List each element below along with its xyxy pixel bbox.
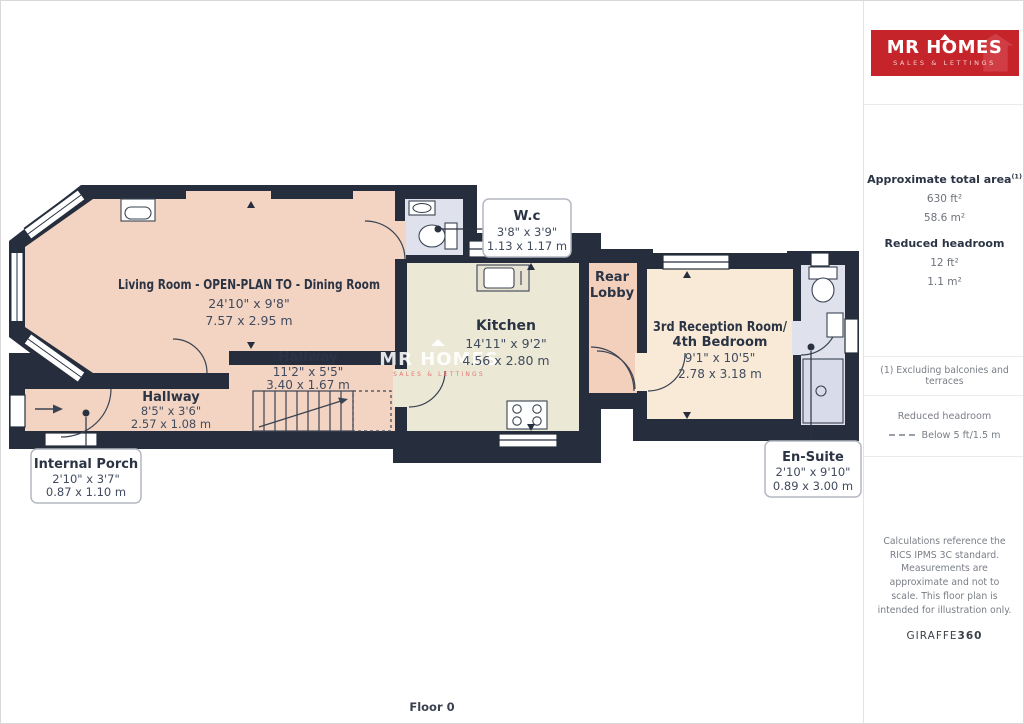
- kitchen-name: Kitchen: [476, 318, 536, 334]
- ensuite-callout-metric: 0.89 x 3.00 m: [773, 479, 853, 493]
- logo-tagline: SALES & LETTINGS: [893, 59, 996, 67]
- provider-suffix: 360: [958, 630, 983, 642]
- porch-entry-opening: [10, 395, 25, 427]
- alcove-notch-2: [353, 191, 395, 201]
- porch-threshold: [45, 433, 97, 446]
- agency-logo: MR HOMES SALES & LETTINGS: [871, 30, 1019, 76]
- fireplace: [121, 199, 155, 221]
- hallway-front-imperial: 8'5" x 3'6": [141, 404, 201, 418]
- watermark-tagline: SALES & LETTINGS: [393, 371, 485, 378]
- door-gap-lobby-reception: [635, 353, 649, 391]
- footnote-text: (1) Excluding balconies and terraces: [876, 365, 1013, 387]
- hallway-front-metric: 2.57 x 1.08 m: [131, 417, 211, 431]
- hallway-main-metric: 3.40 x 1.67 m: [266, 378, 350, 392]
- porch-callout-imperial: 2'10" x 3'7": [52, 472, 120, 486]
- logo-section: MR HOMES SALES & LETTINGS: [864, 1, 1024, 105]
- roof-icon: [940, 34, 950, 40]
- reception-name-2: 4th Bedroom: [673, 335, 768, 350]
- total-area-heading: Approximate total area(1): [867, 173, 1022, 186]
- total-area-imperial: 630 ft²: [927, 193, 962, 205]
- total-area-superscript: (1): [1011, 172, 1021, 180]
- door-gap-reception-ensuite: [792, 321, 803, 355]
- ensuite-top-window: [811, 253, 829, 266]
- alcove-notch-1: [186, 191, 271, 201]
- porch-callout-metric: 0.87 x 1.10 m: [46, 485, 126, 499]
- legend-label: Reduced headroom: [898, 411, 991, 422]
- hallway-main-imperial: 11'2" x 5'5": [273, 365, 344, 379]
- floorplan-svg: MR HOMES SALES & LETTINGS Living Room - …: [1, 1, 863, 724]
- legend-row: Below 5 ft/1.5 m: [889, 430, 1001, 441]
- floor-label: Floor 0: [409, 700, 454, 714]
- hallway-main-name: Hallway: [278, 349, 338, 365]
- rear-lobby-name-1: Rear: [595, 270, 630, 285]
- ensuite-leader-dot: [808, 344, 815, 351]
- reception-name-1: 3rd Reception Room/: [653, 320, 787, 335]
- porch-leader-dot: [83, 410, 90, 417]
- ensuite-sink: [827, 313, 843, 337]
- reduced-headroom-heading: Reduced headroom: [885, 237, 1005, 250]
- legend-section: Reduced headroom Below 5 ft/1.5 m: [864, 396, 1024, 457]
- porch-callout-name: Internal Porch: [34, 457, 138, 472]
- reduced-headroom-metric: 1.1 m²: [927, 276, 961, 288]
- hallway-front-name: Hallway: [142, 390, 200, 405]
- stove: [507, 401, 547, 429]
- wc-callout-metric: 1.13 x 1.17 m: [487, 239, 567, 253]
- kitchen-metric: 4.56 x 2.80 m: [462, 353, 549, 368]
- kitchen-imperial: 14'11" x 9'2": [465, 336, 546, 351]
- legend-value: Below 5 ft/1.5 m: [922, 430, 1001, 441]
- ensuite-callout-name: En-Suite: [782, 450, 844, 465]
- reception-metric: 2.78 x 3.18 m: [678, 367, 762, 381]
- floorplan-drawing: MR HOMES SALES & LETTINGS Living Room - …: [1, 1, 863, 724]
- wc-callout-name: W.c: [514, 208, 541, 224]
- logo-brand-label: MR HOMES: [887, 37, 1003, 58]
- reception-imperial: 9'1" x 10'5": [685, 351, 756, 365]
- dashed-line-icon: [889, 434, 915, 436]
- total-area-label: Approximate total area: [867, 173, 1011, 186]
- ensuite-callout-imperial: 2'10" x 9'10": [776, 465, 851, 479]
- total-area-metric: 58.6 m²: [924, 212, 965, 224]
- wc-callout-imperial: 3'8" x 3'9": [497, 225, 557, 239]
- footnote-section: (1) Excluding balconies and terraces: [864, 357, 1024, 396]
- provider-name: GIRAFFE: [907, 630, 958, 642]
- living-room-name: Living Room - OPEN-PLAN TO - Dining Room: [118, 277, 380, 293]
- wc-sink: [409, 201, 435, 215]
- disclaimer-section: Calculations reference the RICS IPMS 3C …: [864, 457, 1024, 724]
- disclaimer-text: Calculations reference the RICS IPMS 3C …: [876, 535, 1013, 619]
- wc-leader-dot: [435, 226, 442, 233]
- kitchen-sink: [477, 265, 529, 291]
- living-room-metric: 7.57 x 2.95 m: [205, 313, 292, 328]
- info-sidebar: MR HOMES SALES & LETTINGS Approximate to…: [863, 1, 1024, 723]
- floorplan-page: MR HOMES SALES & LETTINGS Living Room - …: [0, 0, 1024, 724]
- ensuite-side-window: [845, 319, 858, 353]
- shower: [803, 359, 843, 423]
- rear-lobby-name-2: Lobby: [590, 286, 635, 301]
- area-summary-section: Approximate total area(1) 630 ft² 58.6 m…: [864, 105, 1024, 357]
- reduced-headroom-imperial: 12 ft²: [930, 257, 959, 269]
- living-room-imperial: 24'10" x 9'8": [208, 296, 289, 311]
- logo-brand-text: MR HOMES: [887, 39, 1003, 57]
- provider-logo: GIRAFFE360: [907, 629, 983, 645]
